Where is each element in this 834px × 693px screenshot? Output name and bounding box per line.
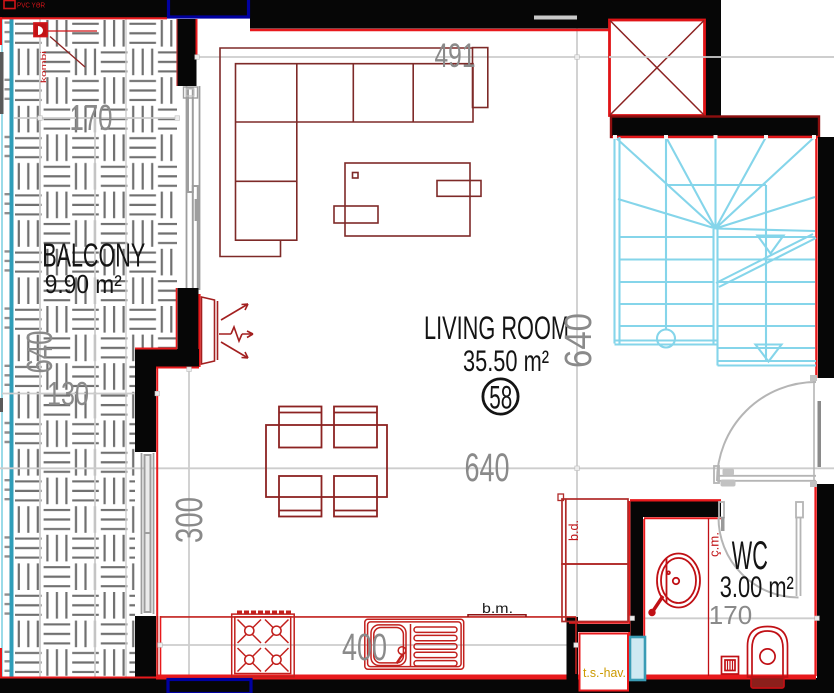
svg-text:35.50 m²: 35.50 m² bbox=[463, 345, 549, 378]
svg-text:BALCONY: BALCONY bbox=[42, 237, 145, 274]
svg-text:170: 170 bbox=[709, 600, 752, 630]
svg-text:LIVING ROOM: LIVING ROOM bbox=[424, 310, 569, 346]
svg-text:t.s.-hav.: t.s.-hav. bbox=[583, 665, 626, 680]
svg-text:ç.m.: ç.m. bbox=[707, 532, 722, 557]
svg-text:b.d.: b.d. bbox=[566, 520, 581, 541]
svg-text:400: 400 bbox=[342, 627, 387, 669]
svg-text:170: 170 bbox=[70, 97, 113, 138]
svg-text:PVC YƏR: PVC YƏR bbox=[17, 3, 45, 10]
svg-text:9.90 m²: 9.90 m² bbox=[45, 269, 122, 299]
svg-text:300: 300 bbox=[169, 497, 211, 543]
svg-text:491: 491 bbox=[435, 37, 476, 75]
svg-text:640: 640 bbox=[465, 446, 510, 490]
svg-text:kombi: kombi bbox=[41, 50, 48, 83]
svg-text:130: 130 bbox=[47, 375, 89, 412]
svg-text:58: 58 bbox=[489, 380, 512, 416]
svg-text:b.m.: b.m. bbox=[482, 600, 513, 616]
svg-text:640: 640 bbox=[19, 331, 60, 374]
svg-text:640: 640 bbox=[558, 313, 600, 368]
